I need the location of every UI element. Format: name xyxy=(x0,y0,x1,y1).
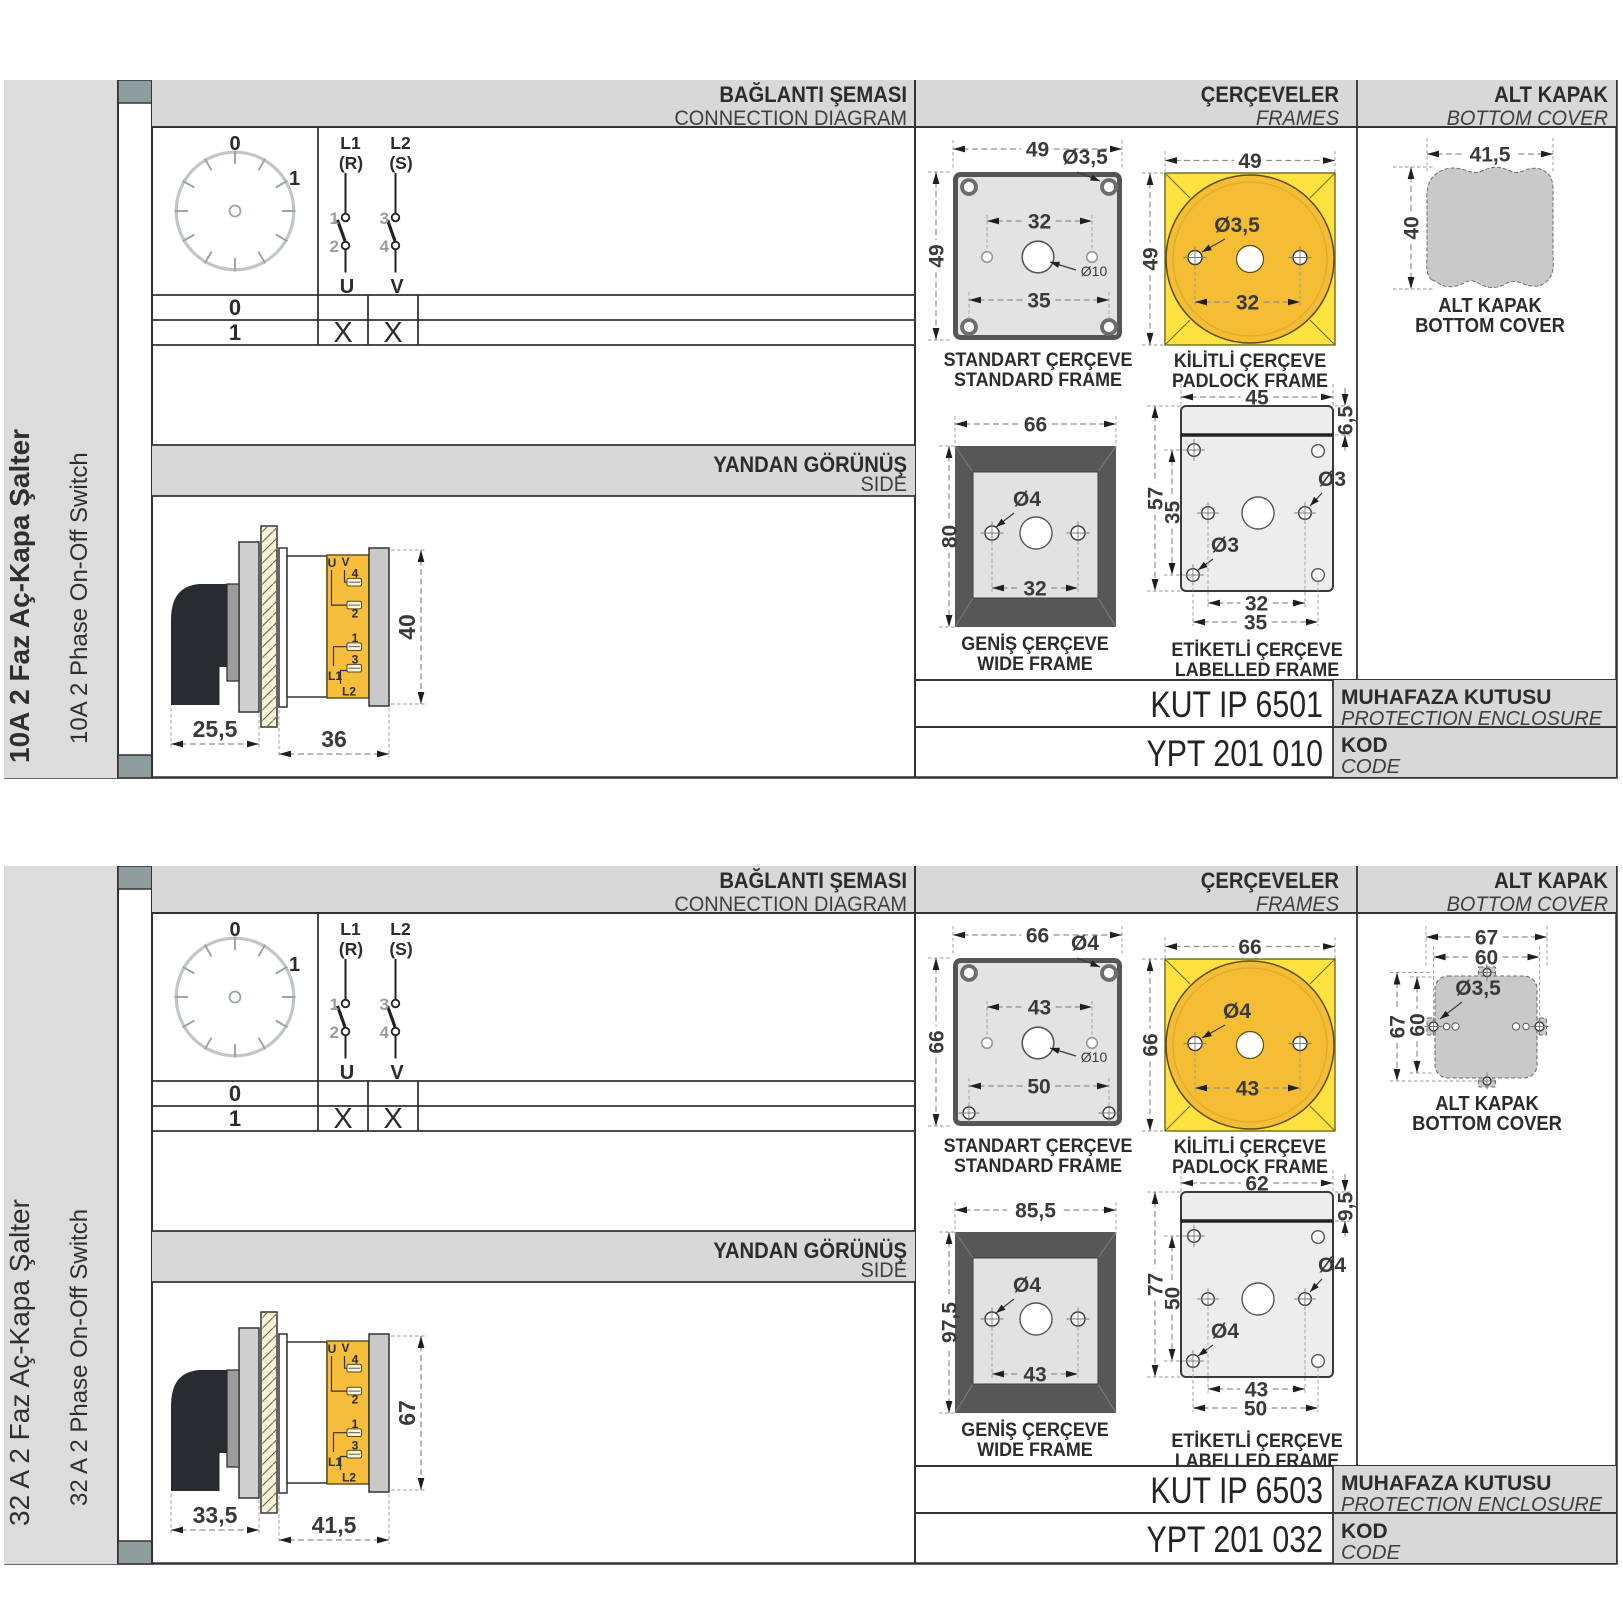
svg-text:BOTTOM COVER: BOTTOM COVER xyxy=(1412,1113,1562,1135)
svg-text:32: 32 xyxy=(1023,578,1046,601)
svg-text:Ø4: Ø4 xyxy=(1013,1274,1041,1297)
svg-text:43: 43 xyxy=(1236,1078,1259,1101)
svg-text:66: 66 xyxy=(1140,1033,1163,1056)
svg-text:2: 2 xyxy=(330,237,339,256)
svg-text:L2: L2 xyxy=(390,919,411,939)
svg-text:(R): (R) xyxy=(339,153,363,173)
svg-text:2: 2 xyxy=(352,607,359,621)
svg-text:1: 1 xyxy=(229,1106,241,1131)
svg-text:Ø3: Ø3 xyxy=(1318,468,1346,491)
svg-text:KİLİTLİ ÇERÇEVE: KİLİTLİ ÇERÇEVE xyxy=(1174,349,1326,371)
svg-text:41,5: 41,5 xyxy=(312,1512,357,1538)
svg-text:3: 3 xyxy=(352,653,359,667)
svg-text:ALT KAPAK: ALT KAPAK xyxy=(1435,1093,1539,1115)
svg-text:3: 3 xyxy=(380,209,389,228)
svg-text:Ø4: Ø4 xyxy=(1071,932,1099,955)
svg-text:49: 49 xyxy=(1238,150,1261,173)
svg-text:43: 43 xyxy=(1028,997,1051,1020)
svg-text:X: X xyxy=(333,1103,352,1135)
svg-text:V: V xyxy=(341,555,349,569)
svg-text:ÇERÇEVELER: ÇERÇEVELER xyxy=(1201,869,1339,893)
svg-text:CONNECTION DIAGRAM: CONNECTION DIAGRAM xyxy=(674,893,907,917)
svg-text:BAĞLANTI ŞEMASI: BAĞLANTI ŞEMASI xyxy=(719,82,907,107)
svg-text:STANDART ÇERÇEVE: STANDART ÇERÇEVE xyxy=(944,348,1133,370)
svg-text:32 A 2 Phase On-Off Switch: 32 A 2 Phase On-Off Switch xyxy=(66,1209,93,1506)
svg-text:4: 4 xyxy=(380,1023,390,1042)
svg-text:GENİŞ ÇERÇEVE: GENİŞ ÇERÇEVE xyxy=(961,632,1108,654)
svg-text:49: 49 xyxy=(1026,139,1049,162)
svg-text:0: 0 xyxy=(229,295,241,320)
svg-text:Ø4: Ø4 xyxy=(1211,1320,1239,1343)
svg-text:X: X xyxy=(383,1103,402,1135)
svg-text:0: 0 xyxy=(229,919,240,941)
svg-text:36: 36 xyxy=(321,726,347,752)
svg-text:9,5: 9,5 xyxy=(1335,1192,1358,1222)
svg-text:L1: L1 xyxy=(328,1455,342,1469)
svg-text:35: 35 xyxy=(1027,290,1051,313)
svg-text:4: 4 xyxy=(380,237,390,256)
svg-text:STANDARD FRAME: STANDARD FRAME xyxy=(954,368,1122,390)
svg-text:YPT 201 032: YPT 201 032 xyxy=(1146,1519,1323,1561)
svg-text:10A 2 Phase On-Off Switch: 10A 2 Phase On-Off Switch xyxy=(66,452,93,744)
svg-text:1: 1 xyxy=(352,1417,359,1431)
svg-text:WIDE FRAME: WIDE FRAME xyxy=(977,1438,1092,1460)
svg-text:50: 50 xyxy=(1244,1398,1267,1421)
svg-text:L2: L2 xyxy=(342,1471,356,1485)
svg-text:60: 60 xyxy=(1407,1013,1430,1036)
svg-text:49: 49 xyxy=(926,244,949,267)
svg-text:66: 66 xyxy=(1024,414,1047,437)
svg-text:X: X xyxy=(383,317,402,349)
svg-text:1: 1 xyxy=(289,954,300,976)
svg-text:1: 1 xyxy=(352,631,359,645)
svg-text:YPT 201 010: YPT 201 010 xyxy=(1146,733,1323,775)
svg-text:62: 62 xyxy=(1245,1173,1268,1196)
svg-text:32 A 2 Faz Aç-Kapa Şalter: 32 A 2 Faz Aç-Kapa Şalter xyxy=(4,1199,35,1526)
svg-text:40: 40 xyxy=(1401,216,1424,239)
svg-text:WIDE FRAME: WIDE FRAME xyxy=(977,652,1092,674)
svg-text:U: U xyxy=(328,1342,337,1356)
svg-text:LABELLED FRAME: LABELLED FRAME xyxy=(1175,1449,1339,1471)
svg-text:43: 43 xyxy=(1023,1364,1046,1387)
svg-text:KUT IP 6503: KUT IP 6503 xyxy=(1150,1470,1323,1512)
svg-text:U: U xyxy=(328,556,337,570)
svg-text:1: 1 xyxy=(330,995,339,1014)
svg-text:(S): (S) xyxy=(389,153,412,173)
svg-text:ALT KAPAK: ALT KAPAK xyxy=(1438,295,1542,317)
svg-text:CODE: CODE xyxy=(1341,755,1401,778)
svg-text:MUHAFAZA KUTUSU: MUHAFAZA KUTUSU xyxy=(1341,686,1551,709)
svg-text:85,5: 85,5 xyxy=(1015,1200,1056,1223)
svg-text:97,5: 97,5 xyxy=(939,1302,962,1343)
svg-text:KİLİTLİ ÇERÇEVE: KİLİTLİ ÇERÇEVE xyxy=(1174,1135,1326,1157)
svg-text:SIDE: SIDE xyxy=(860,473,907,497)
svg-text:Ø4: Ø4 xyxy=(1223,1000,1251,1023)
svg-text:PROTECTION ENCLOSURE: PROTECTION ENCLOSURE xyxy=(1341,1494,1603,1516)
svg-text:GENİŞ ÇERÇEVE: GENİŞ ÇERÇEVE xyxy=(961,1418,1108,1440)
svg-text:BOTTOM COVER: BOTTOM COVER xyxy=(1415,315,1565,337)
svg-text:L2: L2 xyxy=(390,133,411,153)
svg-text:66: 66 xyxy=(926,1030,949,1053)
svg-text:FRAMES: FRAMES xyxy=(1256,107,1339,131)
svg-text:CONNECTION DIAGRAM: CONNECTION DIAGRAM xyxy=(674,107,907,131)
svg-text:41,5: 41,5 xyxy=(1470,144,1511,167)
svg-text:Ø3: Ø3 xyxy=(1211,534,1239,557)
svg-text:10A 2 Faz Aç-Kapa Şalter: 10A 2 Faz Aç-Kapa Şalter xyxy=(4,429,35,763)
svg-text:Ø3,5: Ø3,5 xyxy=(1214,214,1260,237)
svg-text:0: 0 xyxy=(229,1081,241,1106)
svg-text:FRAMES: FRAMES xyxy=(1256,893,1339,917)
svg-text:L1: L1 xyxy=(328,669,342,683)
svg-text:50: 50 xyxy=(1162,1287,1185,1310)
svg-text:50: 50 xyxy=(1027,1076,1050,1099)
svg-text:32: 32 xyxy=(1028,211,1051,234)
svg-text:STANDARD FRAME: STANDARD FRAME xyxy=(954,1154,1122,1176)
svg-text:2: 2 xyxy=(352,1393,359,1407)
svg-text:3: 3 xyxy=(380,995,389,1014)
svg-text:BOTTOM COVER: BOTTOM COVER xyxy=(1447,107,1609,131)
svg-text:45: 45 xyxy=(1245,387,1269,410)
svg-text:4: 4 xyxy=(352,1353,359,1367)
svg-text:66: 66 xyxy=(1238,936,1261,959)
svg-text:CODE: CODE xyxy=(1341,1541,1401,1564)
svg-text:Ø4: Ø4 xyxy=(1318,1254,1346,1277)
svg-text:(R): (R) xyxy=(339,939,363,959)
svg-text:1: 1 xyxy=(289,168,300,190)
svg-text:25,5: 25,5 xyxy=(193,716,238,742)
svg-text:0: 0 xyxy=(229,133,240,155)
svg-text:Ø3,5: Ø3,5 xyxy=(1062,146,1108,169)
svg-text:V: V xyxy=(341,1341,349,1355)
svg-text:1: 1 xyxy=(330,209,339,228)
svg-text:4: 4 xyxy=(352,567,359,581)
svg-text:80: 80 xyxy=(939,525,962,548)
svg-text:L1: L1 xyxy=(340,919,361,939)
svg-text:35: 35 xyxy=(1244,612,1268,635)
svg-text:(S): (S) xyxy=(389,939,412,959)
svg-text:KOD: KOD xyxy=(1341,1520,1388,1543)
svg-text:Ø10: Ø10 xyxy=(1081,1049,1108,1065)
svg-text:Ø4: Ø4 xyxy=(1013,488,1041,511)
svg-text:2: 2 xyxy=(330,1023,339,1042)
svg-text:40: 40 xyxy=(394,614,420,640)
svg-text:LABELLED FRAME: LABELLED FRAME xyxy=(1175,658,1339,680)
svg-text:ETİKETLİ ÇERÇEVE: ETİKETLİ ÇERÇEVE xyxy=(1171,638,1342,660)
svg-text:BAĞLANTI ŞEMASI: BAĞLANTI ŞEMASI xyxy=(719,868,907,893)
svg-text:32: 32 xyxy=(1236,292,1259,315)
svg-text:ETİKETLİ ÇERÇEVE: ETİKETLİ ÇERÇEVE xyxy=(1171,1429,1342,1451)
svg-text:L1: L1 xyxy=(340,133,361,153)
svg-text:KOD: KOD xyxy=(1341,734,1388,757)
svg-text:67: 67 xyxy=(394,1400,420,1426)
svg-text:MUHAFAZA KUTUSU: MUHAFAZA KUTUSU xyxy=(1341,1472,1551,1495)
svg-text:PROTECTION ENCLOSURE: PROTECTION ENCLOSURE xyxy=(1341,708,1603,730)
svg-text:X: X xyxy=(333,317,352,349)
svg-text:SIDE: SIDE xyxy=(860,1259,907,1283)
svg-text:6,5: 6,5 xyxy=(1335,406,1358,436)
svg-text:ALT KAPAK: ALT KAPAK xyxy=(1494,83,1609,107)
svg-text:Ø10: Ø10 xyxy=(1081,263,1108,279)
svg-text:BOTTOM COVER: BOTTOM COVER xyxy=(1447,893,1609,917)
svg-text:ÇERÇEVELER: ÇERÇEVELER xyxy=(1201,83,1339,107)
svg-text:3: 3 xyxy=(352,1439,359,1453)
svg-text:STANDART ÇERÇEVE: STANDART ÇERÇEVE xyxy=(944,1134,1133,1156)
svg-text:KUT IP 6501: KUT IP 6501 xyxy=(1150,684,1323,726)
svg-text:33,5: 33,5 xyxy=(193,1502,238,1528)
svg-text:35: 35 xyxy=(1162,501,1185,525)
svg-text:49: 49 xyxy=(1140,247,1163,270)
svg-text:ALT KAPAK: ALT KAPAK xyxy=(1494,869,1609,893)
svg-text:Ø3,5: Ø3,5 xyxy=(1455,977,1501,1000)
svg-text:1: 1 xyxy=(229,320,241,345)
svg-text:60: 60 xyxy=(1475,947,1498,970)
svg-text:L2: L2 xyxy=(342,685,356,699)
svg-text:66: 66 xyxy=(1026,925,1049,948)
